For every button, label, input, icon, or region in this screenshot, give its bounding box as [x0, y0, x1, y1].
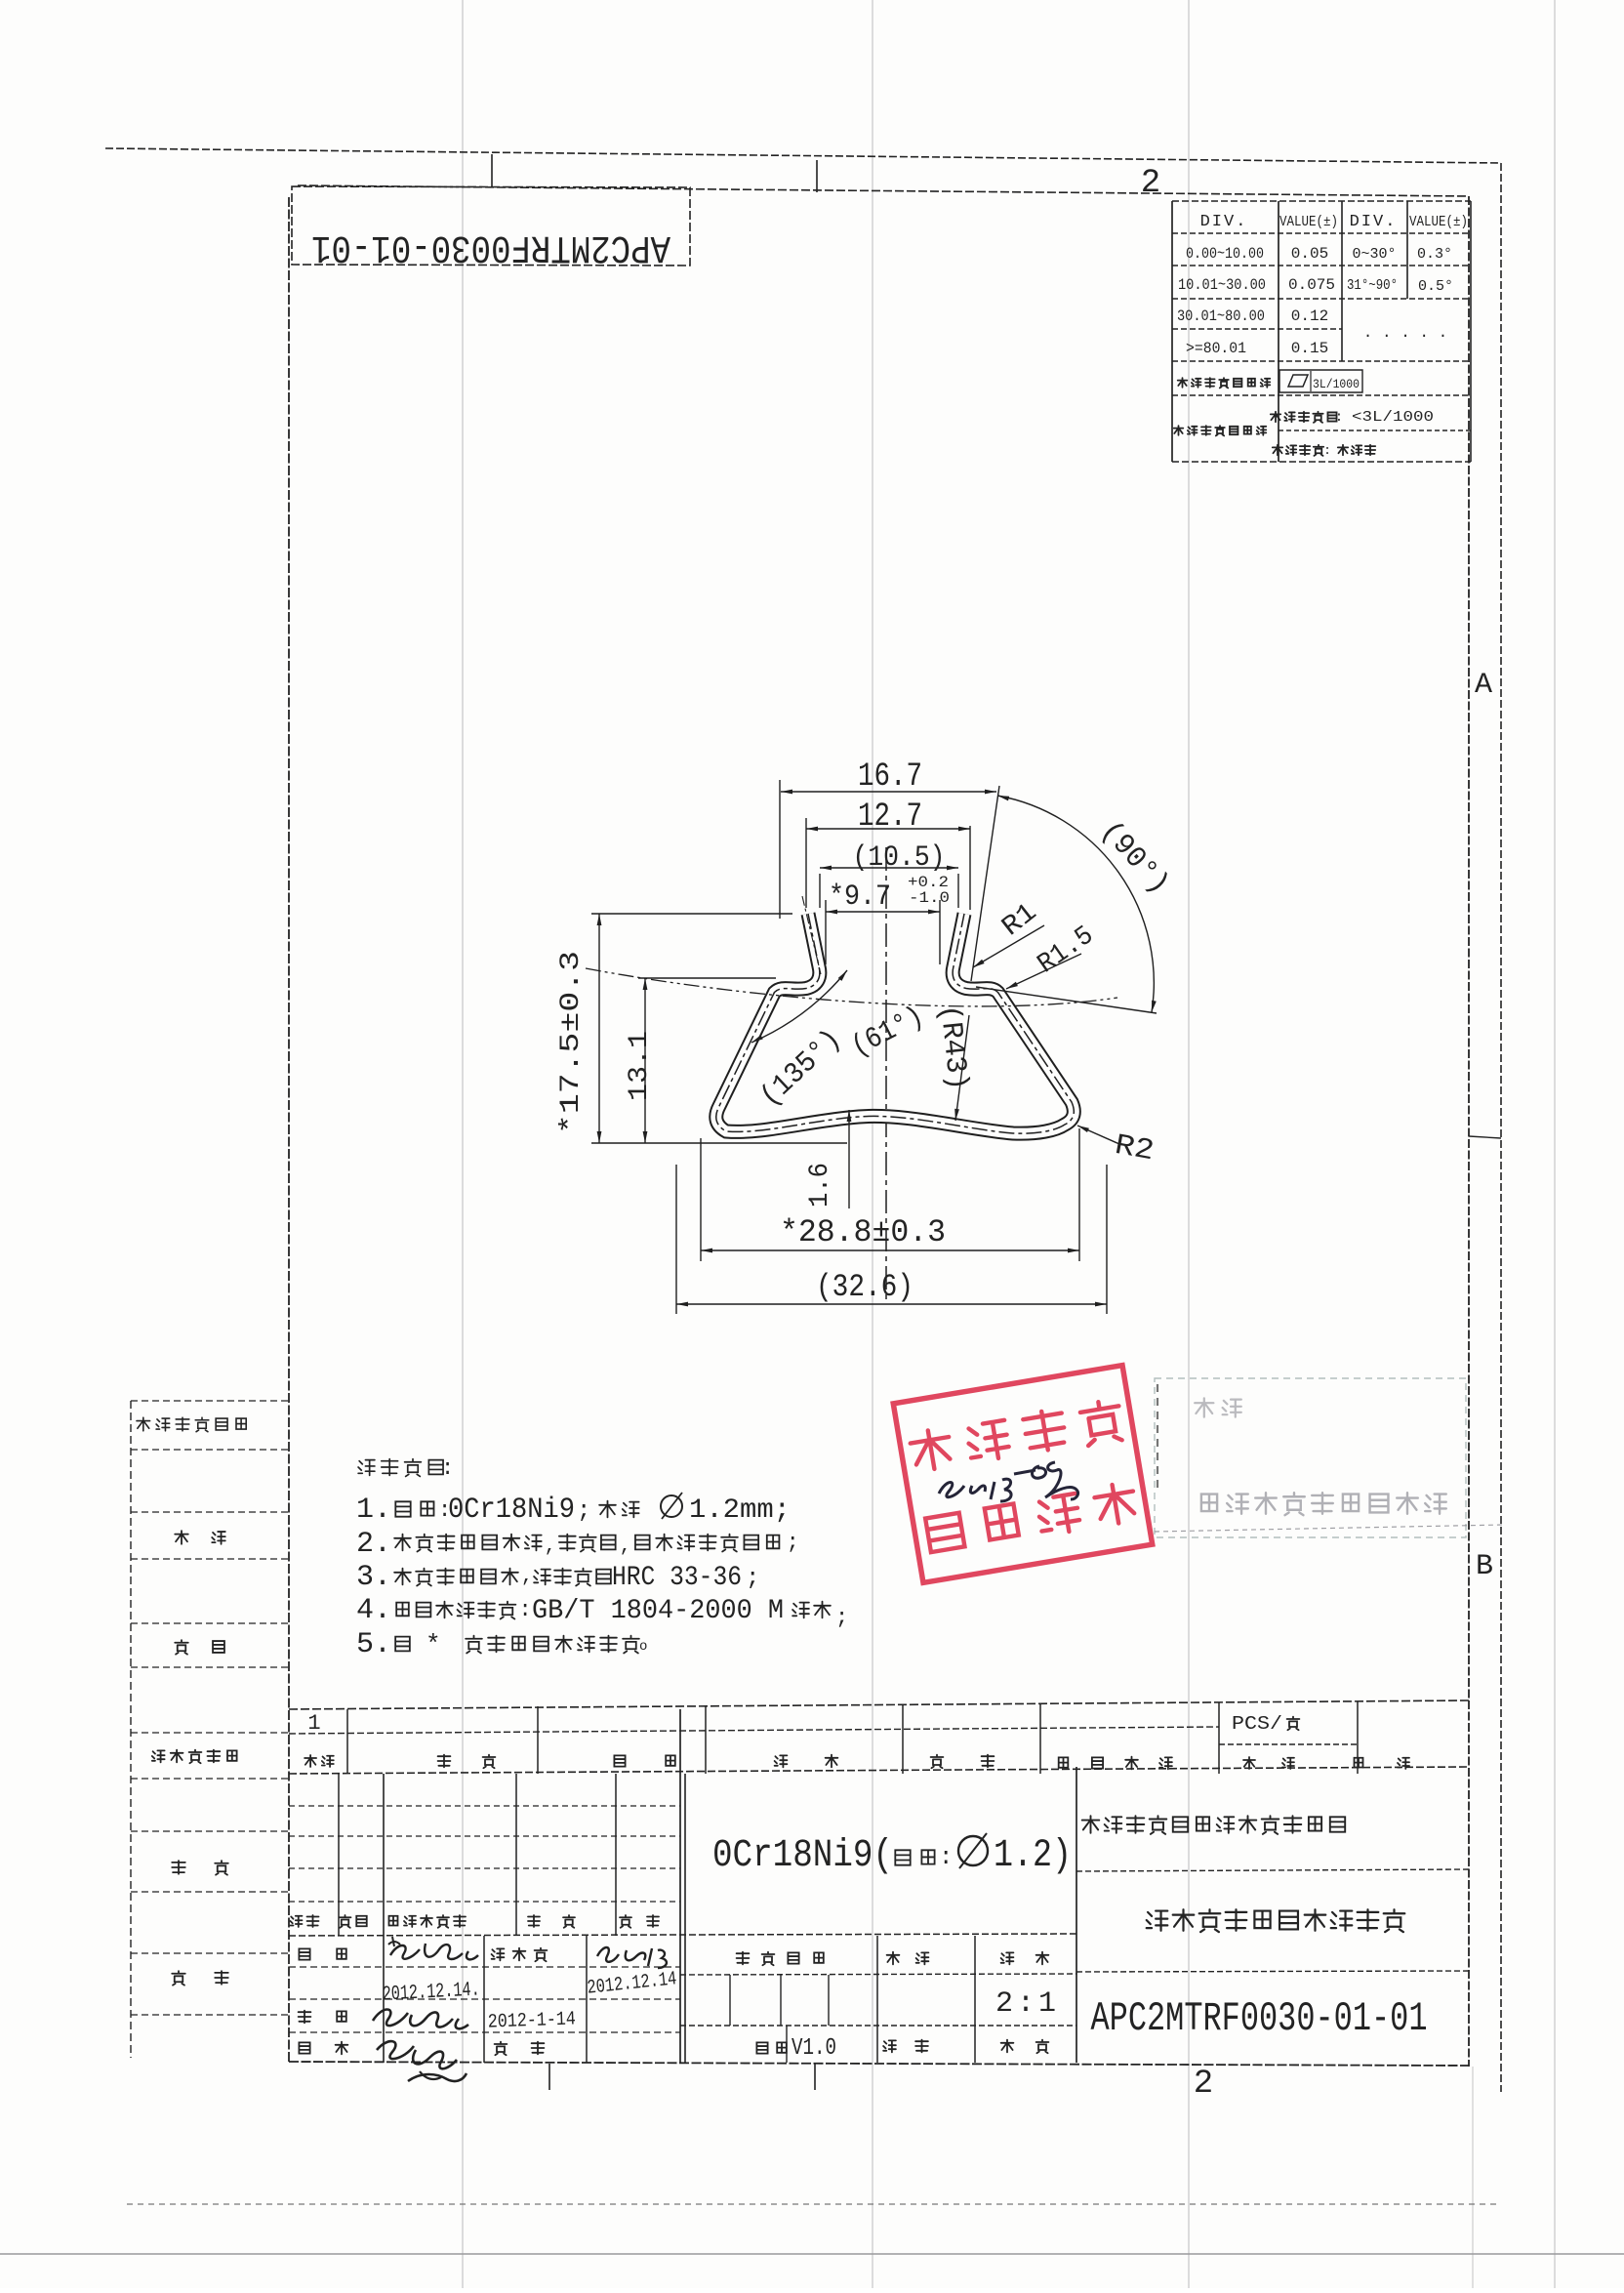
svg-text:0.00~10.00: 0.00~10.00: [1186, 245, 1264, 263]
svg-text:0.15: 0.15: [1291, 340, 1328, 357]
svg-text::: :: [441, 1456, 454, 1481]
svg-text::: :: [939, 1845, 953, 1871]
svg-text:;: ;: [835, 1606, 848, 1630]
svg-text:;: ;: [577, 1498, 590, 1525]
svg-text:,: ,: [545, 1535, 556, 1558]
svg-text:30.01~80.00: 30.01~80.00: [1177, 307, 1265, 325]
svg-text:GB/T 1804-2000 M: GB/T 1804-2000 M: [532, 1596, 784, 1626]
svg-text:R2: R2: [1113, 1129, 1157, 1168]
svg-text:0Cr18Ni9: 0Cr18Ni9: [448, 1494, 575, 1527]
svg-text:16.7: 16.7: [858, 758, 922, 796]
svg-text:B: B: [1476, 1550, 1493, 1583]
svg-text:HRC 33-36: HRC 33-36: [612, 1563, 742, 1593]
svg-text:. . . . .: . . . . .: [1363, 324, 1447, 342]
svg-text:<3L/1000: <3L/1000: [1352, 409, 1434, 426]
svg-text:5.: 5.: [356, 1628, 391, 1661]
svg-text:A: A: [1475, 669, 1492, 702]
svg-text:1.2mm;: 1.2mm;: [689, 1495, 791, 1526]
svg-text:2: 2: [1194, 2066, 1213, 2103]
svg-text:1.2): 1.2): [994, 1834, 1072, 1878]
svg-text:3.: 3.: [356, 1561, 391, 1594]
svg-text:13.1: 13.1: [625, 1031, 655, 1101]
svg-text:*: *: [426, 1630, 441, 1659]
svg-text:0~30°: 0~30°: [1352, 246, 1396, 263]
svg-text::: :: [1335, 410, 1343, 426]
svg-text:2012-1-14: 2012-1-14: [487, 2008, 576, 2033]
svg-text:31°~90°: 31°~90°: [1347, 277, 1398, 294]
svg-text:,: ,: [521, 1566, 533, 1588]
svg-text:0.5°: 0.5°: [1418, 278, 1453, 295]
svg-text:*9.7: *9.7: [829, 880, 891, 914]
svg-text:>=80.01: >=80.01: [1186, 340, 1246, 357]
svg-text:0.05: 0.05: [1291, 245, 1328, 263]
svg-text:4.: 4.: [356, 1594, 391, 1627]
svg-text:,: ,: [620, 1535, 631, 1558]
svg-text:(10.5): (10.5): [853, 841, 946, 875]
svg-text:*17.5±0.3: *17.5±0.3: [556, 951, 587, 1134]
svg-text:10.01~30.00: 10.01~30.00: [1178, 276, 1266, 294]
svg-text:1: 1: [307, 1711, 320, 1736]
svg-text:0.075: 0.075: [1288, 276, 1335, 294]
svg-text::: :: [519, 1598, 532, 1622]
svg-text:o: o: [639, 1639, 647, 1655]
svg-text:DIV.: DIV.: [1200, 213, 1248, 231]
svg-text:12.7: 12.7: [858, 798, 922, 836]
svg-text:2.: 2.: [356, 1528, 391, 1561]
svg-text:V1.0: V1.0: [792, 2035, 836, 2062]
svg-text:*28.8±0.3: *28.8±0.3: [780, 1214, 946, 1250]
svg-text:VALUE(±): VALUE(±): [1279, 214, 1338, 230]
svg-text:APC2MTRF0030-01-01: APC2MTRF0030-01-01: [1091, 1995, 1428, 2042]
svg-text:;: ;: [787, 1531, 799, 1555]
svg-text::: :: [1323, 443, 1331, 458]
svg-text:(32.6): (32.6): [816, 1269, 913, 1305]
svg-text:0.12: 0.12: [1291, 307, 1328, 325]
svg-text:DIV.: DIV.: [1350, 213, 1398, 231]
svg-text:3L/1000: 3L/1000: [1313, 377, 1360, 391]
svg-text:VALUE(±): VALUE(±): [1409, 214, 1468, 230]
svg-text:2: 2: [1141, 165, 1160, 202]
svg-text:1.6: 1.6: [805, 1163, 835, 1208]
svg-text:0Cr18Ni9(: 0Cr18Ni9(: [712, 1834, 893, 1878]
svg-text:APC2MTRF0030-01-01: APC2MTRF0030-01-01: [311, 225, 670, 268]
svg-text:PCS/: PCS/: [1232, 1713, 1282, 1735]
svg-text:;: ;: [746, 1566, 759, 1592]
svg-text:2:1: 2:1: [995, 1987, 1060, 2021]
svg-text:1.: 1.: [356, 1494, 391, 1527]
svg-text:0.3°: 0.3°: [1417, 246, 1452, 263]
svg-text:-1.0: -1.0: [909, 889, 950, 907]
